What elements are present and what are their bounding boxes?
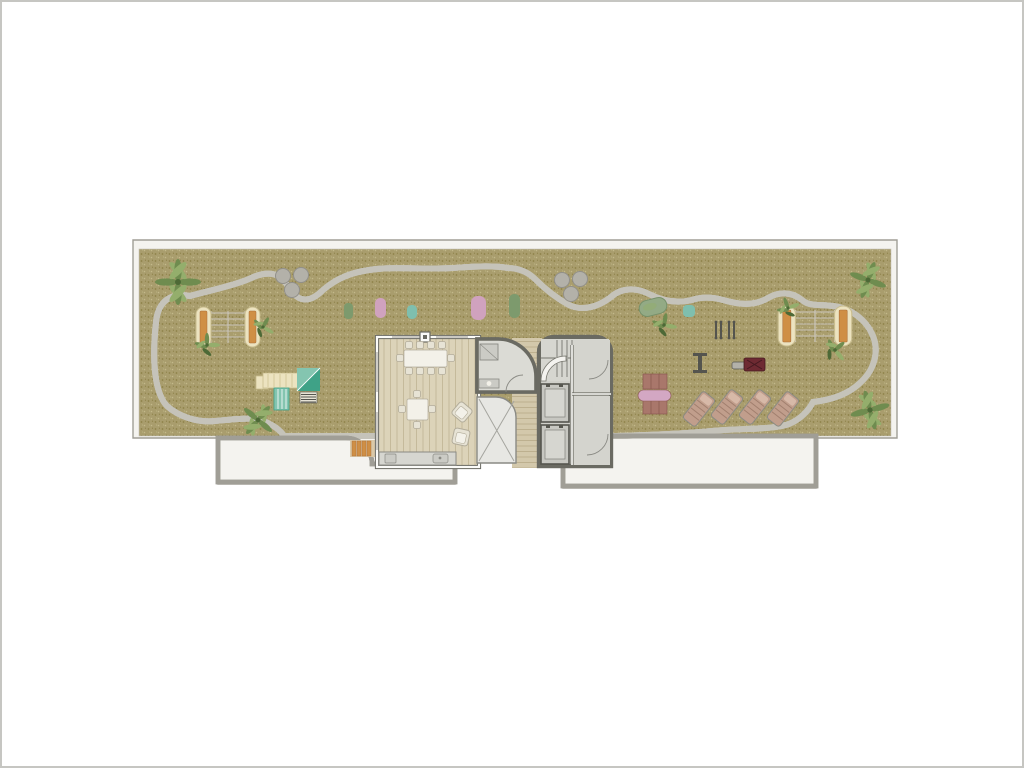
page [0, 0, 1024, 768]
living-room [377, 332, 479, 467]
teal-mat [683, 305, 695, 317]
skylight-void [477, 397, 516, 463]
elevator-2 [541, 425, 569, 464]
floor-plan-canvas [2, 2, 1022, 766]
armchair-2 [452, 428, 471, 447]
elevator-1 [541, 384, 569, 422]
core [539, 337, 611, 466]
wood-steps [350, 440, 376, 457]
slide [274, 388, 289, 410]
penthouse-building [377, 332, 611, 468]
core-room-upper [573, 340, 610, 393]
kitchen-counter [379, 452, 456, 465]
picnic-table [638, 374, 671, 414]
cooktop [385, 454, 396, 463]
